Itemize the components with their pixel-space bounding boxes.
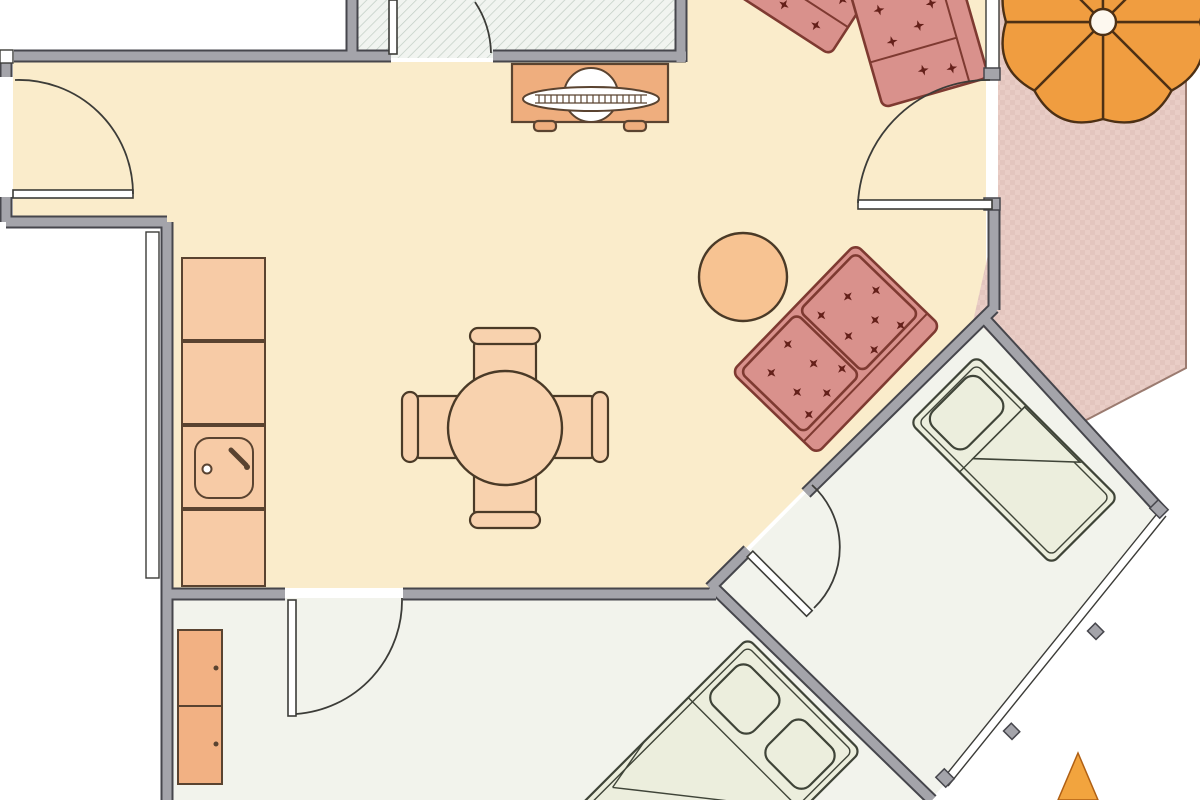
floor-plan-canvas [0,0,1200,800]
wardrobe-cabinets [178,630,222,784]
glass-door-jamb-top [984,68,1000,80]
north-arrow [1058,753,1098,800]
console-decor-lens [523,87,659,111]
parasol-hub [1090,9,1116,35]
sideboard-console [512,64,668,131]
window-terrace-glass [986,0,999,74]
dining-table-round [448,371,562,485]
coffee-table-round [699,233,787,321]
hall-hatched-floor [352,0,682,58]
window-kitchen-west [146,232,159,578]
kitchen-counter [182,258,265,586]
window-corner-top-left [0,50,13,63]
floor-plan-svg [0,0,1200,800]
